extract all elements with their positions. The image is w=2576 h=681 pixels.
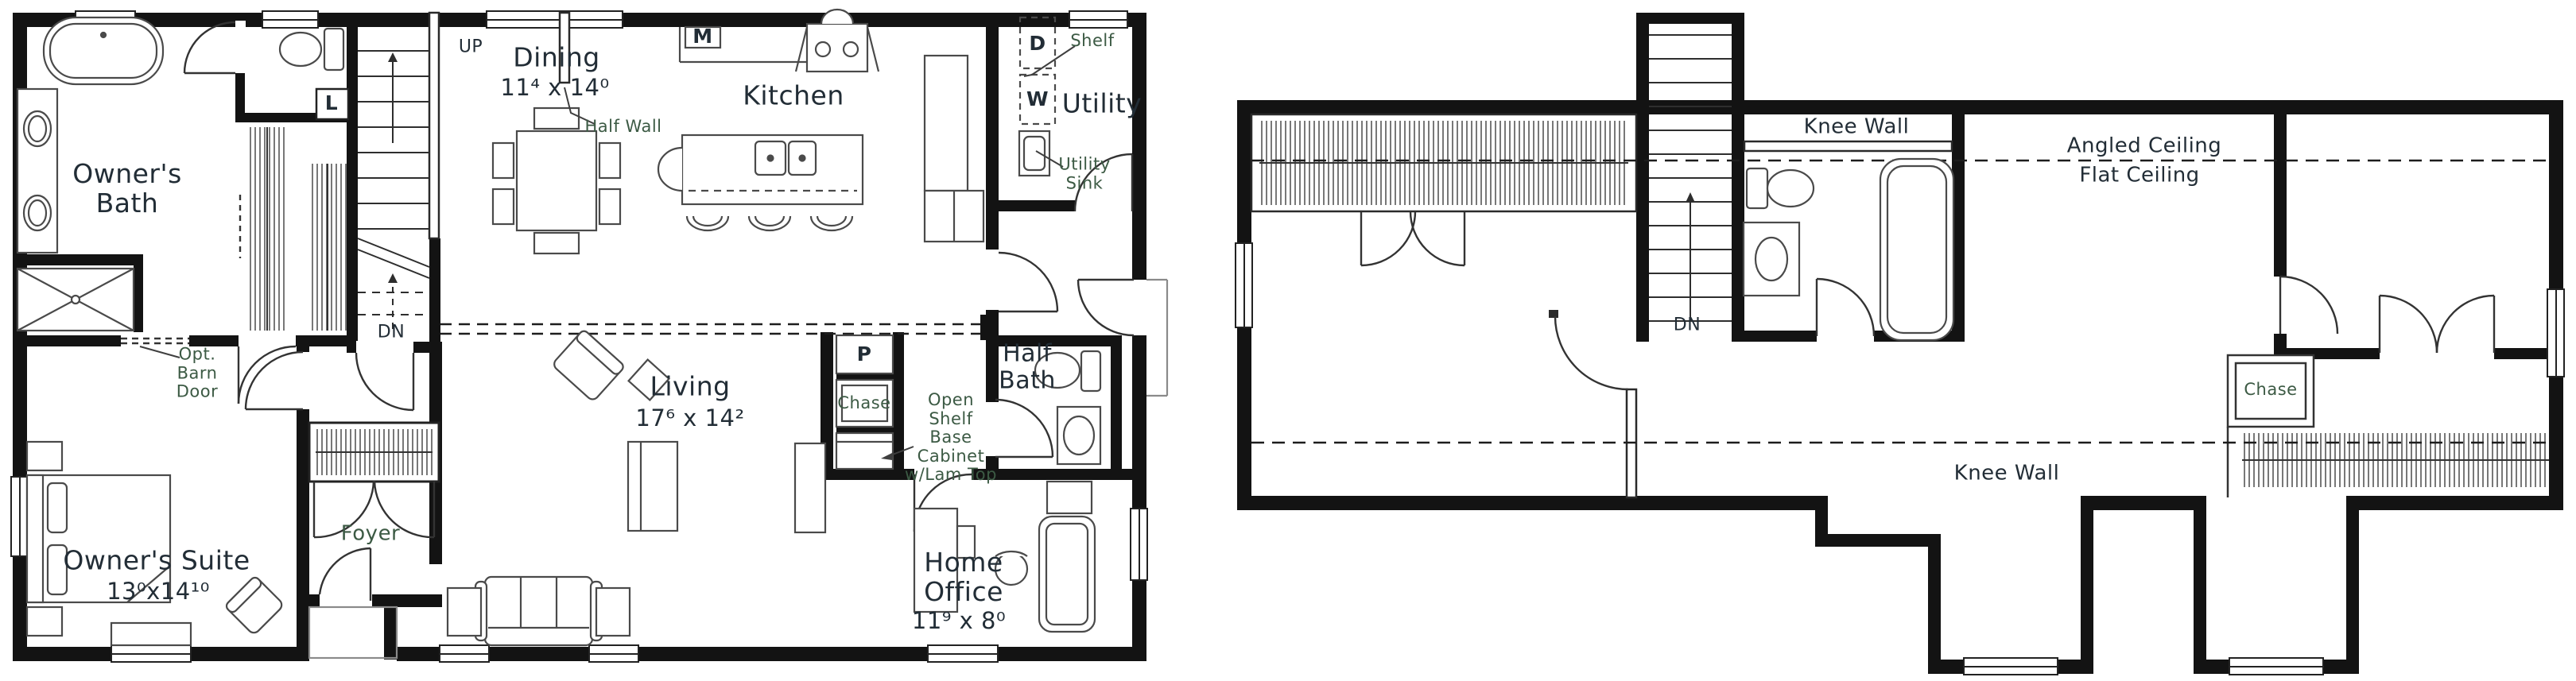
appliance-label-washer: W [1026, 88, 1049, 110]
table-icon [1047, 482, 1092, 513]
fridge-icon [925, 191, 983, 242]
room-dims-dining: 11⁴ x 14⁰ [500, 75, 609, 100]
front-door [320, 548, 370, 601]
door [2280, 277, 2337, 334]
window [2547, 289, 2564, 377]
window [589, 645, 638, 662]
sofa-icon [475, 577, 602, 645]
annotation-chase: Chase [837, 394, 890, 413]
pedestal-sink-icon [1057, 407, 1100, 464]
side-table-icon [596, 588, 630, 636]
stair-label-up: UP [459, 38, 483, 58]
stair-label-dn-floor2: DN [1674, 316, 1701, 336]
floor1-stairs [358, 51, 429, 329]
island-icon [658, 135, 863, 204]
door [184, 22, 235, 73]
annotation-utility-sink: Utility Sink [1058, 155, 1110, 192]
annotation-open-shelf-cabinet: Open Shelf Base Cabinet w/Lam Top [905, 391, 997, 485]
annotation-chase-floor2: Chase [2244, 381, 2297, 400]
door [999, 253, 1057, 311]
double-door [1361, 211, 1465, 265]
stoop-icon [1146, 280, 1167, 396]
window [11, 477, 28, 556]
bathtub-icon [44, 17, 163, 84]
annotation-flat-ceiling: Flat Ceiling [2079, 164, 2199, 187]
window [487, 11, 623, 28]
floor2-stairs [1649, 35, 1732, 321]
accent-chair-icon [628, 442, 677, 531]
room-label-half-bath: Half Bath [999, 340, 1056, 393]
double-door [2380, 296, 2494, 353]
floor1-closets [248, 89, 439, 482]
window [1131, 509, 1147, 580]
room-dims-home-office: 11⁹ x 8⁰ [912, 608, 1006, 633]
stool-icon [687, 216, 728, 230]
room-label-utility: Utility [1062, 90, 1143, 119]
door [246, 352, 303, 409]
room-label-foyer: Foyer [341, 522, 401, 545]
floor2-fixtures [1744, 159, 1953, 340]
room-label-living: Living [650, 373, 730, 402]
floorplan-page: Owner's Bath Dining 11⁴ x 14⁰ Kitchen Ut… [0, 0, 2576, 681]
door [995, 400, 1053, 457]
window [2229, 658, 2323, 675]
room-label-owners-suite: Owner's Suite [63, 547, 250, 576]
base-cabinet-icon [836, 433, 893, 469]
appliance-label-microwave: M [692, 25, 712, 48]
window [1964, 658, 2058, 675]
utility-sink-icon [1019, 131, 1049, 176]
door [356, 353, 413, 410]
closet-label-pantry: P [857, 343, 872, 366]
toilet-icon [280, 29, 343, 70]
appliance-label-dryer: D [1029, 33, 1046, 55]
annotation-opt-barn-door: Opt. Barn Door [177, 346, 219, 402]
stool-icon [749, 216, 790, 230]
bathtub-icon [1880, 159, 1953, 340]
nightstand-icon [27, 442, 62, 470]
door [1817, 279, 1874, 336]
accent-chair-icon [795, 443, 825, 532]
room-label-owners-bath: Owner's Bath [72, 160, 182, 219]
room-label-dining: Dining [513, 44, 600, 73]
back-door [1078, 280, 1134, 335]
porch-icon [309, 607, 397, 658]
annotation-shelf: Shelf [1070, 32, 1114, 51]
door [1549, 310, 1628, 389]
closet-label-linen: L [325, 92, 338, 114]
annotation-angled-ceiling: Angled Ceiling [2067, 134, 2222, 157]
window [1069, 11, 1127, 28]
room-dims-owners-suite: 13⁰x14¹⁰ [107, 578, 210, 604]
shower-icon [17, 269, 134, 331]
stair-label-dn: DN [378, 323, 405, 343]
dresser-icon [111, 623, 191, 645]
armchair-icon [225, 576, 285, 636]
floor2-openings [1817, 330, 1874, 342]
counter-icon [925, 56, 968, 191]
window [1236, 243, 1252, 327]
window [928, 645, 998, 662]
window [440, 645, 489, 662]
daybed-icon [1039, 517, 1095, 632]
side-table-icon [448, 588, 481, 636]
floor2-walls [1237, 13, 2563, 674]
vanity-sink-icon [1744, 222, 1799, 296]
nightstand-icon [27, 607, 62, 636]
stool-icon [811, 216, 852, 230]
room-label-kitchen: Kitchen [743, 82, 844, 111]
toilet-icon [1747, 168, 1814, 208]
window [262, 11, 318, 28]
annotation-half-wall: Half Wall [584, 118, 661, 137]
vanity-double-sink-icon [17, 89, 57, 253]
room-dims-living: 17⁶ x 14² [635, 405, 744, 431]
annotation-knee-wall-bottom: Knee Wall [1954, 462, 2060, 485]
window [111, 645, 191, 662]
armchair-icon [552, 329, 625, 401]
annotation-knee-wall-top: Knee Wall [1804, 115, 1910, 138]
room-label-home-office: Home Office [924, 548, 1003, 607]
